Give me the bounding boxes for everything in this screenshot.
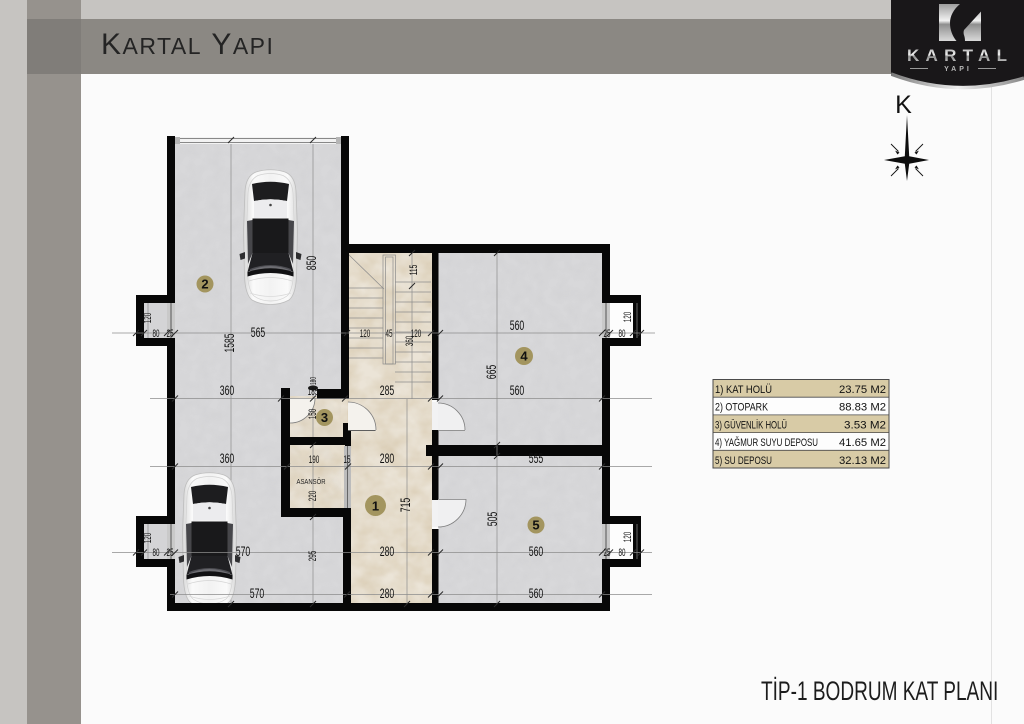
svg-text:23.75 M2: 23.75 M2: [839, 384, 886, 396]
svg-text:4) YAĞMUR SUYU DEPOSU: 4) YAĞMUR SUYU DEPOSU: [715, 436, 818, 449]
svg-text:1585: 1585: [222, 334, 237, 353]
svg-text:560: 560: [510, 318, 525, 333]
svg-text:3: 3: [321, 410, 328, 425]
svg-text:560: 560: [529, 586, 544, 601]
svg-text:80: 80: [153, 328, 160, 340]
svg-text:665: 665: [484, 365, 499, 380]
svg-text:715: 715: [398, 498, 413, 513]
svg-text:295: 295: [307, 551, 319, 562]
svg-text:360: 360: [220, 383, 235, 398]
svg-text:360: 360: [404, 336, 416, 347]
svg-text:80: 80: [619, 547, 626, 559]
svg-text:560: 560: [529, 544, 544, 559]
svg-text:5) SU DEPOSU: 5) SU DEPOSU: [715, 455, 772, 467]
svg-text:570: 570: [236, 544, 251, 559]
svg-text:850: 850: [304, 256, 319, 271]
svg-text:2) OTOPARK: 2) OTOPARK: [715, 402, 769, 414]
svg-text:280: 280: [380, 544, 395, 559]
svg-text:285: 285: [380, 383, 395, 398]
svg-text:15: 15: [344, 454, 351, 466]
svg-text:120: 120: [622, 532, 634, 543]
svg-text:115: 115: [408, 265, 420, 276]
svg-text:120: 120: [142, 533, 154, 544]
svg-text:1: 1: [372, 499, 379, 514]
svg-text:25: 25: [167, 328, 174, 340]
svg-text:280: 280: [380, 451, 395, 466]
svg-text:80: 80: [153, 547, 160, 559]
svg-text:570: 570: [250, 586, 265, 601]
svg-text:360: 360: [220, 451, 235, 466]
svg-text:120: 120: [142, 313, 154, 324]
svg-text:25: 25: [167, 547, 174, 559]
svg-text:4: 4: [520, 349, 528, 364]
svg-text:25: 25: [604, 328, 611, 340]
svg-text:32.13 M2: 32.13 M2: [839, 455, 886, 467]
svg-text:41.65 M2: 41.65 M2: [839, 437, 886, 449]
svg-text:3.53 M2: 3.53 M2: [844, 419, 886, 431]
svg-text:80: 80: [619, 328, 626, 340]
svg-text:280: 280: [380, 586, 395, 601]
svg-text:120: 120: [360, 328, 371, 340]
svg-text:190: 190: [309, 454, 320, 466]
svg-text:1) KAT HOLÜ: 1) KAT HOLÜ: [715, 384, 772, 396]
svg-text:K: K: [895, 91, 912, 119]
svg-text:180: 180: [309, 377, 318, 385]
svg-text:25: 25: [604, 547, 611, 559]
svg-text:505: 505: [485, 512, 500, 527]
svg-text:3) GÜVENLİK HOLÜ: 3) GÜVENLİK HOLÜ: [715, 418, 787, 431]
svg-text:120: 120: [622, 312, 634, 323]
svg-text:45: 45: [386, 328, 393, 340]
svg-text:565: 565: [251, 325, 266, 340]
svg-text:185: 185: [308, 386, 319, 398]
svg-text:5: 5: [532, 518, 539, 533]
svg-text:220: 220: [307, 491, 319, 502]
svg-text:560: 560: [510, 383, 525, 398]
svg-text:ASANSÖR: ASANSÖR: [297, 477, 326, 486]
svg-text:88.83 M2: 88.83 M2: [839, 402, 886, 414]
svg-text:555: 555: [529, 451, 544, 466]
svg-text:2: 2: [201, 277, 208, 292]
